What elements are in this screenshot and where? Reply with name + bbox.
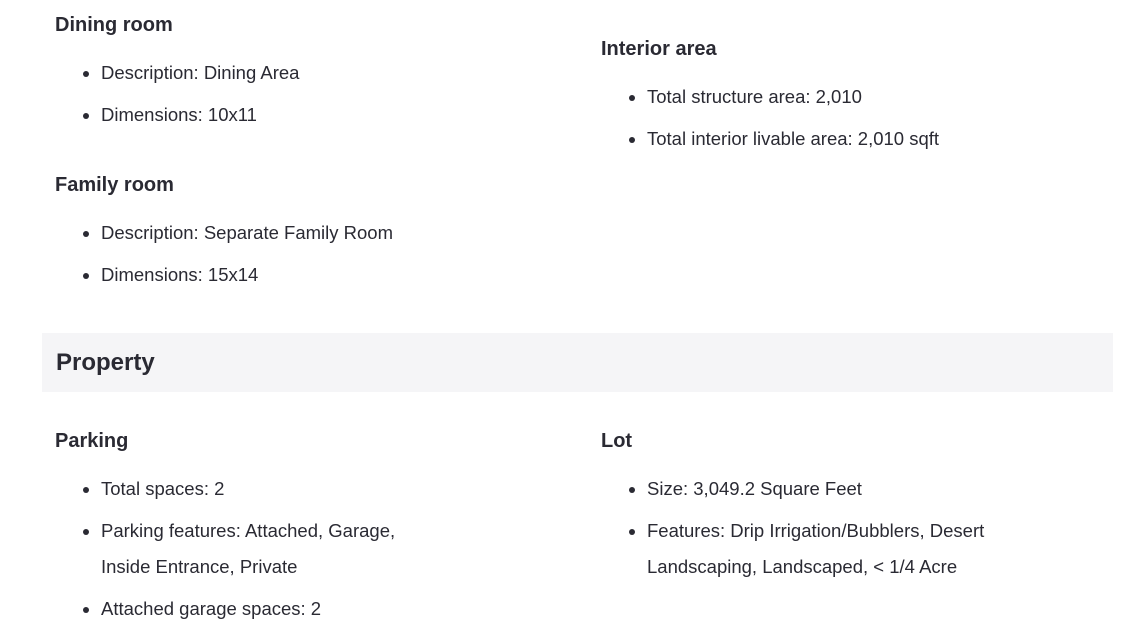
facts-column-right: Lot Size: 3,049.2 Square Feet Features: … bbox=[601, 427, 1113, 627]
fact-item: Size: 3,049.2 Square Feet bbox=[647, 471, 1077, 507]
fact-item: Description: Dining Area bbox=[101, 55, 431, 91]
rooms-and-interior-facts: Dining room Description: Dining Area Dim… bbox=[42, 0, 1113, 293]
facts-column-left: Parking Total spaces: 2 Parking features… bbox=[55, 427, 567, 627]
fact-list: Description: Separate Family Room Dimens… bbox=[55, 199, 567, 293]
fact-list: Size: 3,049.2 Square Feet Features: Drip… bbox=[601, 455, 1113, 585]
category-title: Family room bbox=[55, 171, 567, 199]
category-title: Lot bbox=[601, 427, 1113, 455]
fact-item: Total structure area: 2,010 bbox=[647, 79, 1077, 115]
category-interior-area: Interior area Total structure area: 2,01… bbox=[601, 35, 1113, 157]
category-title: Dining room bbox=[55, 11, 567, 39]
property-facts: Parking Total spaces: 2 Parking features… bbox=[42, 427, 1113, 627]
property-section-header: Property bbox=[42, 333, 1113, 392]
fact-item: Description: Separate Family Room bbox=[101, 215, 431, 251]
fact-item: Total interior livable area: 2,010 sqft bbox=[647, 121, 1077, 157]
fact-list: Description: Dining Area Dimensions: 10x… bbox=[55, 39, 567, 133]
section-title: Property bbox=[56, 347, 1099, 378]
category-dining-room: Dining room Description: Dining Area Dim… bbox=[55, 11, 567, 133]
fact-item: Parking features: Attached, Garage, Insi… bbox=[101, 513, 431, 585]
fact-item: Features: Drip Irrigation/Bubblers, Dese… bbox=[647, 513, 1077, 585]
fact-item: Dimensions: 10x11 bbox=[101, 97, 431, 133]
facts-and-features: Dining room Description: Dining Area Dim… bbox=[42, 0, 1113, 627]
category-lot: Lot Size: 3,049.2 Square Feet Features: … bbox=[601, 427, 1113, 585]
fact-list: Total structure area: 2,010 Total interi… bbox=[601, 63, 1113, 157]
fact-item: Attached garage spaces: 2 bbox=[101, 591, 431, 627]
facts-column-right: Interior area Total structure area: 2,01… bbox=[601, 11, 1113, 293]
category-title: Parking bbox=[55, 427, 567, 455]
fact-list: Total spaces: 2 Parking features: Attach… bbox=[55, 455, 567, 627]
fact-item: Total spaces: 2 bbox=[101, 471, 431, 507]
fact-item: Dimensions: 15x14 bbox=[101, 257, 431, 293]
category-parking: Parking Total spaces: 2 Parking features… bbox=[55, 427, 567, 627]
category-title: Interior area bbox=[601, 35, 1113, 63]
facts-column-left: Dining room Description: Dining Area Dim… bbox=[55, 11, 567, 293]
category-family-room: Family room Description: Separate Family… bbox=[55, 171, 567, 293]
